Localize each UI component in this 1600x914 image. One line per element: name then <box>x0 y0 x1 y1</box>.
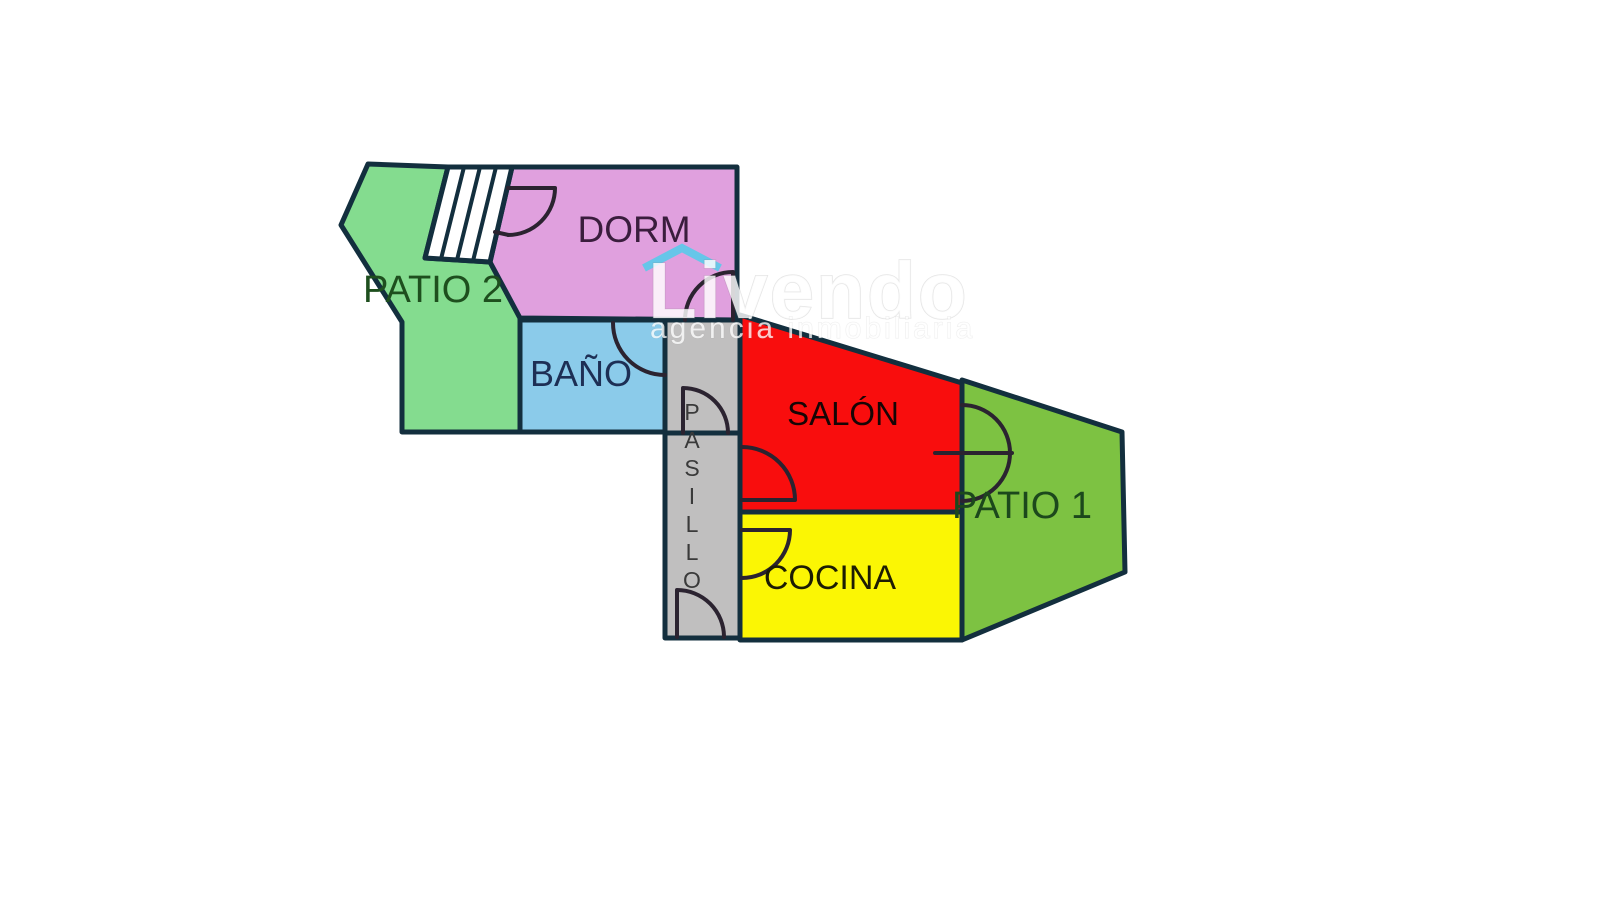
pasillo-letter: P <box>684 399 699 425</box>
watermark-tagline: agencia inmobiliaria <box>650 312 975 345</box>
cocina-label: COCINA <box>764 559 897 597</box>
watermark: Livendo agencia inmobiliaria <box>644 246 975 345</box>
pasillo-letter: S <box>684 455 699 481</box>
pasillo-letter: L <box>686 539 699 565</box>
floor-plan-page: PATIO 2 DORM BAÑO SALÓN COCINA PATIO 1 P… <box>0 0 1600 914</box>
bano-label: BAÑO <box>530 353 632 394</box>
floor-plan-drawing: PATIO 2 DORM BAÑO SALÓN COCINA PATIO 1 P… <box>0 0 1600 914</box>
pasillo-letter: O <box>683 567 701 593</box>
salon-label: SALÓN <box>787 395 899 432</box>
patio2-label: PATIO 2 <box>363 269 503 311</box>
pasillo-letter: I <box>689 483 695 509</box>
dorm-label: DORM <box>577 209 690 250</box>
patio1-label: PATIO 1 <box>952 485 1092 527</box>
pasillo-letter: A <box>684 427 700 453</box>
pasillo-letter: L <box>686 511 699 537</box>
